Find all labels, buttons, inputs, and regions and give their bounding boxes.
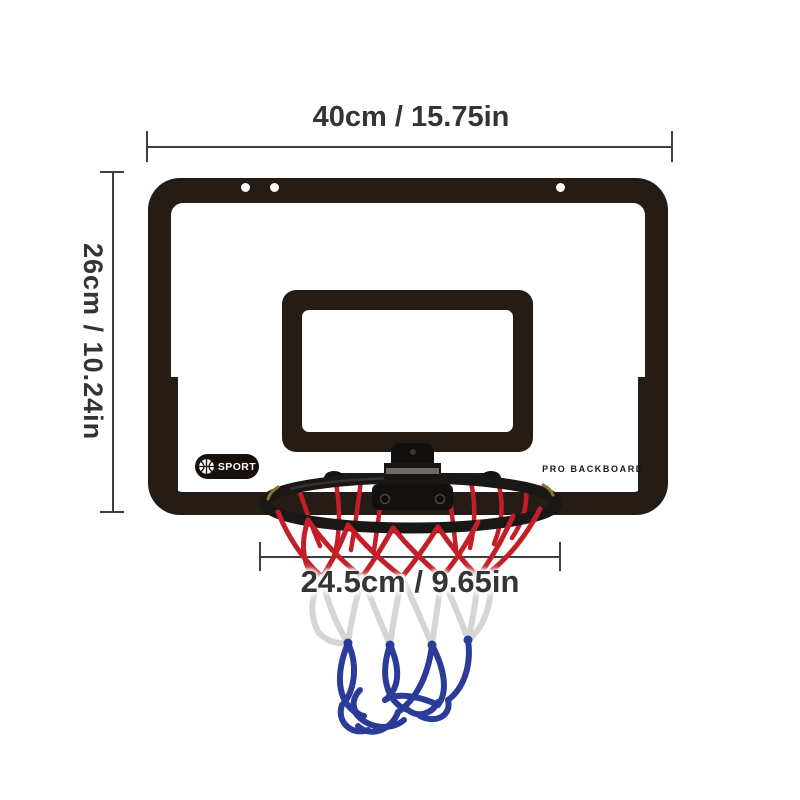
net-blue (340, 640, 469, 732)
backboard: SPORT PRO BACKBOARD (148, 178, 668, 515)
rim-dimension-label: 24.5cm / 9.65in (250, 564, 570, 600)
sport-logo: SPORT (195, 454, 259, 479)
basketball-icon (198, 458, 215, 475)
width-dimension-label: 40cm / 15.75in (281, 101, 541, 134)
width-dimension-tick-right (671, 131, 673, 162)
width-dimension-line (147, 146, 673, 148)
height-dimension-line (112, 172, 114, 512)
pro-backboard-label: PRO BACKBOARD (520, 464, 666, 474)
backboard-edge-step-left (171, 377, 178, 492)
shooter-square-inner (302, 310, 513, 432)
width-dimension-tick-left (146, 131, 148, 162)
mount-hole (270, 183, 279, 192)
height-dimension-label: 26cm / 10.24in (72, 172, 108, 512)
rim-dimension-line (260, 556, 560, 558)
mount-hole (556, 183, 565, 192)
height-dimension-tick-top (100, 171, 124, 173)
net-blue-knots (344, 636, 473, 650)
sport-logo-label: SPORT (218, 461, 256, 473)
height-dimension-tick-bottom (100, 511, 124, 513)
product-dimension-diagram: 40cm / 15.75in 26cm / 10.24in SPORT PRO … (0, 0, 800, 800)
shooter-square (282, 290, 533, 452)
mount-hole (241, 183, 250, 192)
backboard-edge-step-right (638, 377, 645, 492)
